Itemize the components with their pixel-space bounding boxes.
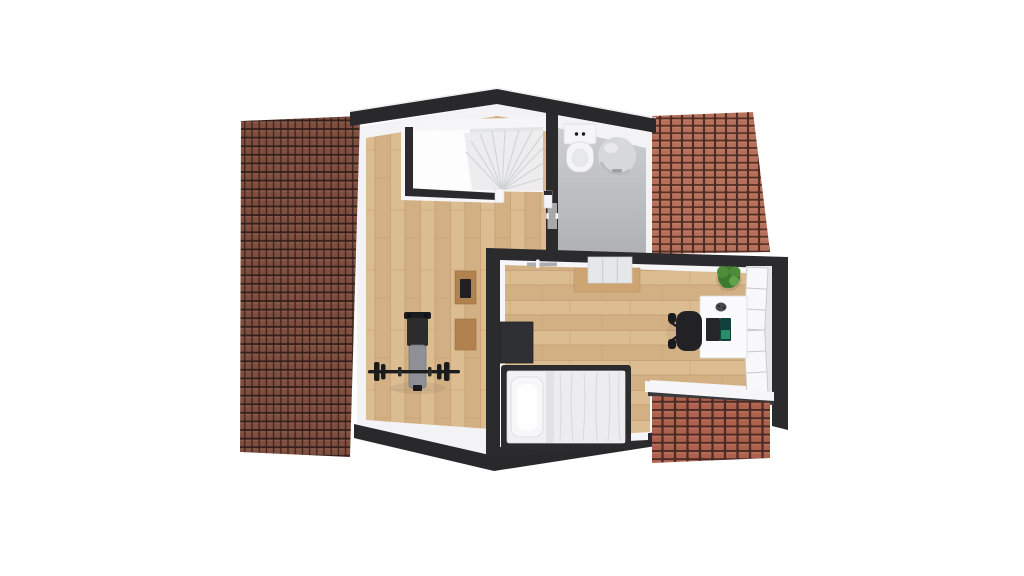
dresser-drawers (588, 257, 632, 283)
plant-foliage (717, 266, 729, 278)
ornament-detail (723, 307, 725, 309)
stair-enclosure-wall-left (405, 127, 413, 194)
barbell-collar (398, 367, 402, 377)
plant-foliage (729, 276, 739, 286)
laptop-keyboard (706, 318, 720, 341)
heater-highlight (604, 143, 618, 153)
barbell-plate (374, 362, 380, 381)
toilet-cistern (564, 124, 596, 144)
dormer-roof (652, 396, 770, 463)
plant-foliage (730, 267, 741, 278)
barbell-plate (381, 364, 386, 380)
bathroom-partition-wall (546, 113, 558, 257)
bench-pad (409, 345, 426, 388)
barbell-plate (444, 362, 450, 381)
single-bed (501, 365, 631, 449)
roof-left (240, 116, 360, 457)
bedroom (486, 248, 788, 463)
floor-plan-render (0, 0, 1024, 576)
cabinet-item (460, 279, 471, 298)
wall-cabinet-upper (455, 271, 476, 304)
bench-knob (424, 313, 428, 317)
chair-armrest (668, 339, 676, 349)
window-jamb-right (772, 257, 788, 404)
barbell-collar (428, 367, 432, 377)
roof-right-upper (652, 112, 770, 254)
chair-seat (676, 311, 702, 351)
water-heater (598, 137, 636, 175)
flush-button (575, 132, 578, 135)
bedroom-wall-left (486, 248, 500, 457)
wall-end-cap (495, 189, 504, 202)
heater-label (612, 169, 622, 173)
bench-knob (407, 313, 411, 317)
pillow-highlight (517, 384, 537, 430)
duvet (546, 371, 625, 443)
stair-newel-cap (544, 191, 552, 195)
dormer-side-frame (772, 396, 788, 430)
barbell-plate (437, 364, 442, 380)
toilet-seat (572, 149, 589, 168)
door-handle (546, 213, 549, 219)
door-handle (556, 213, 559, 219)
chair-armrest (668, 313, 676, 323)
flush-button (582, 132, 585, 135)
toilet (564, 124, 596, 172)
wall-cabinet-lower (455, 319, 476, 350)
bench-backrest (407, 318, 428, 346)
window-panel-upper (744, 267, 768, 330)
ornament-detail (718, 305, 720, 307)
bench-foot (413, 385, 422, 391)
laptop-screen-glow (721, 330, 730, 339)
plant (716, 266, 742, 291)
bedroom-door-handle (536, 260, 540, 269)
nightstand (500, 322, 533, 363)
window-sash (744, 267, 768, 330)
desk-ornament (716, 303, 727, 312)
duvet-fold-band (546, 371, 554, 443)
bedroom-door-leaf (527, 263, 557, 267)
